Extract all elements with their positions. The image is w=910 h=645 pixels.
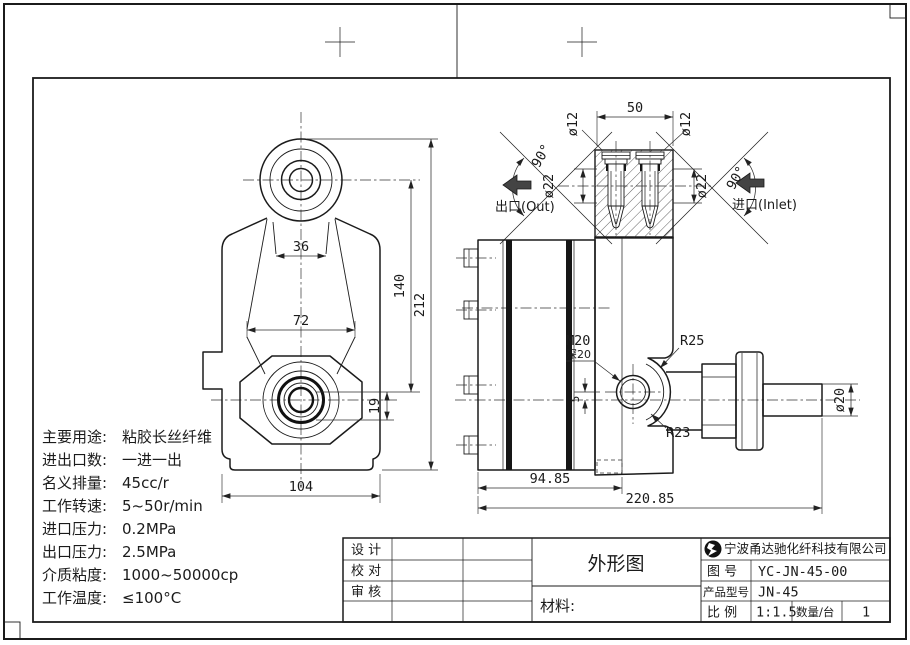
spec-label: 工作转速:: [42, 497, 107, 515]
qty-label: 数量/台: [796, 605, 834, 619]
spec-value: 一进一出: [122, 451, 182, 469]
bolt-heads: [456, 249, 496, 454]
outlet-flow-arrow-icon: [503, 175, 531, 195]
dim-port-dia: ø22: [694, 174, 710, 198]
hidden-edge: [597, 460, 622, 473]
dim-base-width: 104: [289, 479, 313, 495]
spec-label: 出口压力:: [42, 543, 107, 561]
review-label: 审 核: [351, 585, 381, 600]
outlet-label: 出口(Out): [495, 200, 555, 215]
spec-label: 介质粘度:: [42, 566, 107, 584]
dim-port-offset: 5: [569, 396, 582, 403]
scale-value: 1:1.5: [756, 605, 797, 621]
corner-notch-bottom-left: [4, 622, 20, 639]
dim-center-height: 140: [392, 274, 408, 298]
dim-cone-angle: 90°: [529, 141, 555, 170]
drawing-canvas: 36 72 19 104 140 212: [0, 0, 910, 645]
label-thread: M20: [566, 333, 590, 349]
spec-label: 进口压力:: [42, 520, 107, 538]
registration-cross: [567, 27, 597, 57]
spec-value: 5~50r/min: [122, 497, 203, 515]
spec-value: 45cc/r: [122, 474, 170, 492]
company-logo-icon: [705, 541, 722, 558]
dim-offset-19: 19: [367, 398, 383, 414]
spec-label: 主要用途:: [42, 428, 107, 446]
model-label: 产品型号: [703, 585, 749, 599]
dim-port-dia: ø22: [541, 174, 557, 198]
check-label: 校 对: [351, 563, 381, 579]
spec-value: 0.2MPa: [122, 520, 176, 538]
dim-body-width: 72: [293, 313, 309, 329]
dim-total-height: 212: [412, 293, 428, 317]
design-label: 设 计: [351, 543, 381, 558]
spec-value: 1000~50000cp: [122, 566, 238, 584]
spec-value: 粘胶长丝纤维: [122, 428, 212, 446]
label-radius-inner: R23: [666, 425, 690, 441]
spec-label: 名义排量:: [42, 474, 107, 492]
dim-body-length: 94.85: [530, 471, 571, 487]
dim-cartridge-dia: ø12: [565, 112, 581, 136]
corner-notch-top-right: [890, 4, 906, 18]
dim-total-length: 220.85: [626, 491, 675, 507]
drawing-no-label: 图 号: [707, 565, 737, 580]
title-block: 设 计 校 对 审 核 外形图 材料: 宁波甬达驰化纤科技有限公司 图 号 YC…: [343, 538, 890, 622]
drawing-no: YC-JN-45-00: [758, 564, 847, 580]
registration-cross: [325, 27, 355, 57]
spec-label: 进出口数:: [42, 451, 107, 469]
front-view: 36 72 19 104 140 212: [203, 112, 438, 503]
material-label: 材料:: [540, 597, 575, 615]
label-radius-outer: R25: [680, 333, 704, 349]
scale-label: 比 例: [707, 606, 737, 621]
spec-value: 2.5MPa: [122, 543, 176, 561]
model-no: JN-45: [758, 585, 799, 601]
side-view: M20 深20 R25 R23 5 ø20 94.85 220.85: [455, 237, 860, 514]
spec-value: ≤100°C: [122, 589, 181, 607]
dim-cartridge-dia: ø12: [678, 112, 694, 136]
qty-value: 1: [862, 605, 870, 621]
section-view: 90° 90° 50 ø12 ø12 ø22 ø22 出口(Out) 进口(In…: [495, 100, 797, 244]
dim-shaft-dia: ø20: [832, 388, 848, 412]
spec-list: 主要用途: 粘胶长丝纤维 进出口数: 一进一出 名义排量: 45cc/r 工作转…: [42, 428, 238, 607]
spec-label: 工作温度:: [42, 589, 107, 607]
company-name: 宁波甬达驰化纤科技有限公司: [724, 541, 887, 556]
label-thread-depth: 深20: [566, 348, 591, 361]
dim-fork-width: 36: [293, 239, 309, 255]
drawing-sheet: 36 72 19 104 140 212: [0, 0, 910, 645]
drawing-title: 外形图: [587, 553, 644, 575]
dim-port-spacing: 50: [627, 100, 643, 116]
inlet-label: 进口(Inlet): [732, 198, 797, 213]
